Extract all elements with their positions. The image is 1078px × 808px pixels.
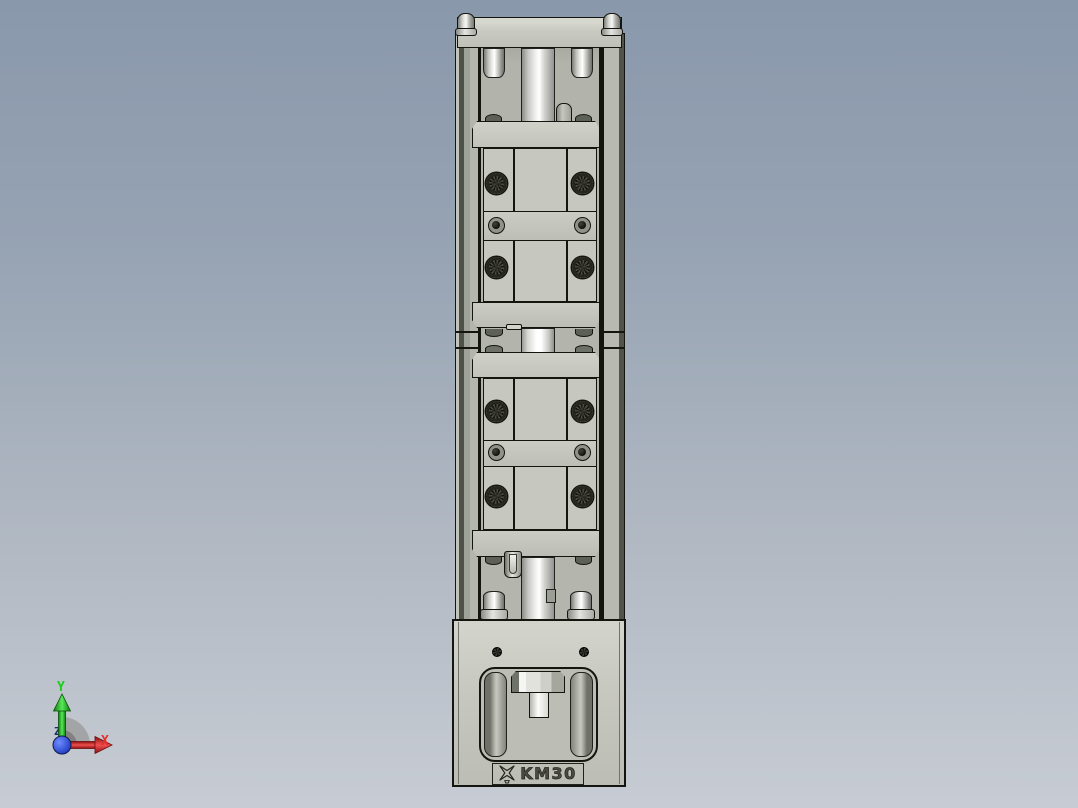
- torx-screw: [486, 173, 507, 194]
- carriage1-top-wiper-plate: [472, 121, 600, 148]
- torx-screw: [486, 486, 507, 507]
- rod-cutout-shadow: [485, 557, 502, 565]
- axis-label-y: Y: [57, 680, 65, 695]
- top-end-cap: [457, 17, 622, 48]
- orientation-triad[interactable]: Z Y X: [30, 664, 140, 764]
- triad-arrows: [30, 664, 140, 764]
- socket-head-screw: [574, 217, 591, 234]
- coupling-shaft: [529, 693, 549, 718]
- rod-cutout-shadow: [485, 345, 503, 353]
- wall-seam: [456, 331, 480, 333]
- carriage2-top-wiper-plate: [472, 352, 600, 378]
- block-edge-line: [619, 622, 620, 784]
- origin-sphere: [53, 736, 71, 754]
- carriage2-bottom-wiper-plate: [472, 530, 600, 557]
- block-edge-line: [458, 622, 459, 784]
- ball-screw-shaft-top: [521, 48, 555, 122]
- torx-screw: [486, 401, 507, 422]
- torx-screw: [486, 257, 507, 278]
- wall-seam: [600, 347, 624, 349]
- rod-cutout-shadow: [575, 329, 593, 337]
- ball-screw-shaft-mid: [521, 328, 555, 355]
- shaft-key-notch: [546, 589, 556, 603]
- torx-screw: [572, 173, 593, 194]
- mount-screw: [492, 647, 502, 657]
- rail-side-wall-right: [599, 33, 625, 620]
- rod-cutout-shadow: [575, 557, 592, 565]
- rod-cutout-shadow: [575, 345, 593, 353]
- model-km30-assembly[interactable]: KM30: [0, 0, 1078, 808]
- wall-seam: [600, 331, 624, 333]
- wall-seam: [456, 347, 480, 349]
- corner-pin-left-collar: [455, 28, 477, 36]
- carriage1-bottom-wiper-plate: [472, 302, 600, 328]
- wiper-tab: [506, 324, 522, 330]
- rod-cutout-shadow: [485, 329, 503, 337]
- label-plate: KM30: [492, 763, 584, 785]
- stopper-pin-slot: [509, 554, 517, 574]
- brand-pinwheel-logo-icon: [499, 765, 515, 784]
- torx-screw: [572, 257, 593, 278]
- guide-rod-left-top: [483, 48, 505, 78]
- guide-rod-right-top: [571, 48, 593, 78]
- torx-screw: [572, 401, 593, 422]
- part-number-text: KM30: [520, 766, 577, 782]
- socket-head-screw: [488, 444, 505, 461]
- corner-pin-right-collar: [601, 28, 623, 36]
- cad-viewport[interactable]: KM30 Z Y X: [0, 0, 1078, 808]
- socket-head-screw: [574, 444, 591, 461]
- coupling-hex-nut: [511, 671, 565, 693]
- y-axis-arrow-head: [54, 694, 71, 711]
- window-pillar-left: [484, 672, 507, 757]
- axis-label-x: X: [101, 734, 109, 749]
- sensor-dog-pin: [556, 103, 572, 123]
- torx-screw: [572, 486, 593, 507]
- window-pillar-right: [570, 672, 593, 757]
- mount-screw: [579, 647, 589, 657]
- socket-head-screw: [488, 217, 505, 234]
